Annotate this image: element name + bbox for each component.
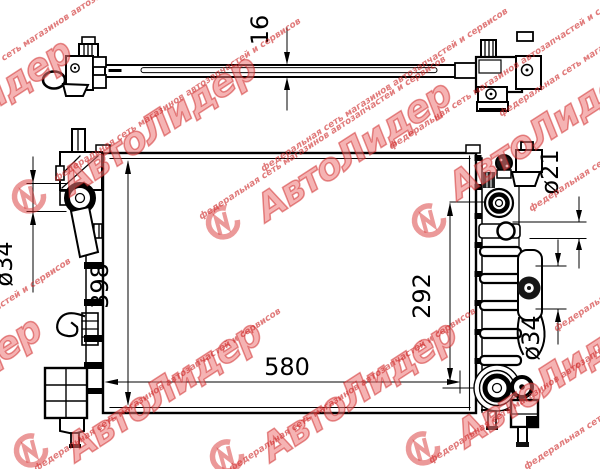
filler-cap	[496, 155, 512, 178]
dim-o21-label: ø21	[536, 149, 564, 194]
technical-drawing-canvas: 16	[0, 0, 600, 469]
right-tank	[474, 142, 545, 447]
radiator-cap	[485, 189, 513, 217]
dim-16-label: 16	[246, 15, 274, 46]
filler-neck-fitting	[479, 223, 520, 240]
dim-o34-left-label: ø34	[0, 241, 18, 286]
dimension-bar-thickness: 16	[246, 15, 290, 110]
top-view-bar	[105, 65, 457, 77]
pipe-end	[43, 72, 65, 89]
dim-398-label: 398	[86, 263, 114, 309]
front-view: 398 580 292	[0, 129, 586, 448]
spring-ribs	[483, 172, 495, 188]
dim-o34-right-label: ø34	[517, 315, 545, 360]
dim-292-label: 292	[408, 273, 436, 319]
inlet-fitting	[60, 185, 98, 257]
top-view-right-bracket	[455, 32, 541, 112]
radiator-technical-drawing: 16	[0, 0, 600, 469]
dim-580-label: 580	[264, 353, 310, 381]
left-lower-bracket	[45, 368, 87, 448]
top-view-left-bracket	[43, 37, 106, 96]
top-view: 16	[43, 15, 541, 112]
left-top-mounting-bracket	[56, 129, 102, 190]
